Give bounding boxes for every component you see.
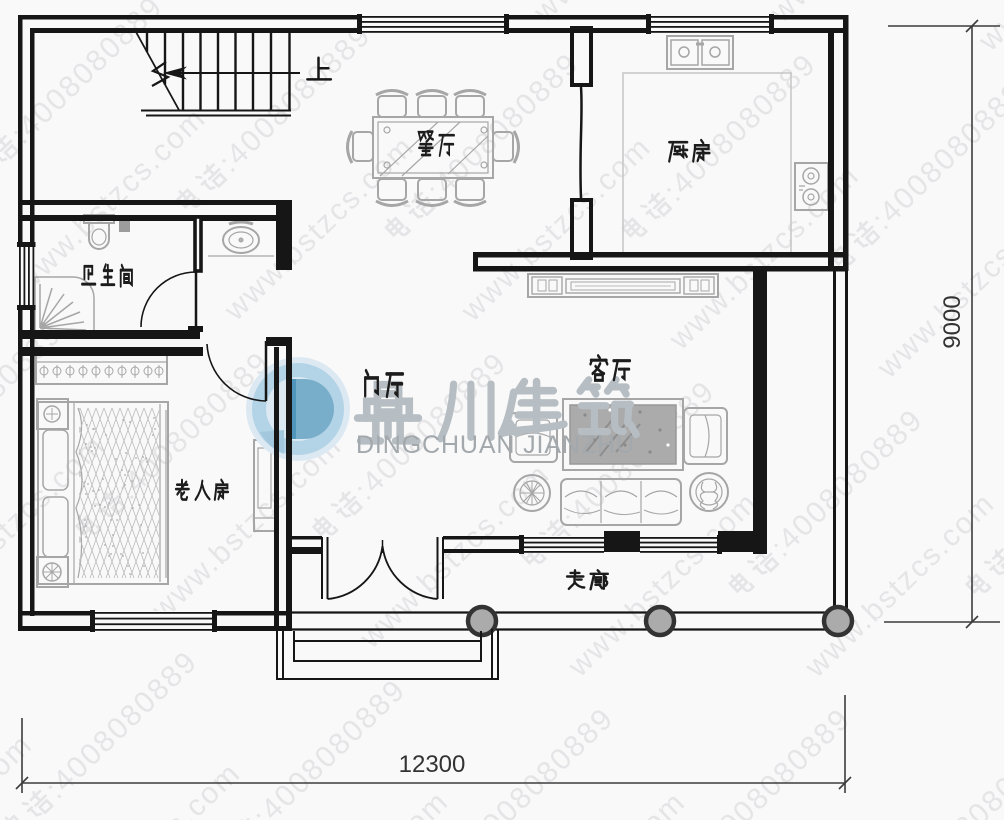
svg-text:DINGCHUAN JIANZHU: DINGCHUAN JIANZHU	[356, 431, 634, 459]
svg-text:9000: 9000	[939, 295, 966, 348]
svg-text:12300: 12300	[399, 751, 466, 778]
